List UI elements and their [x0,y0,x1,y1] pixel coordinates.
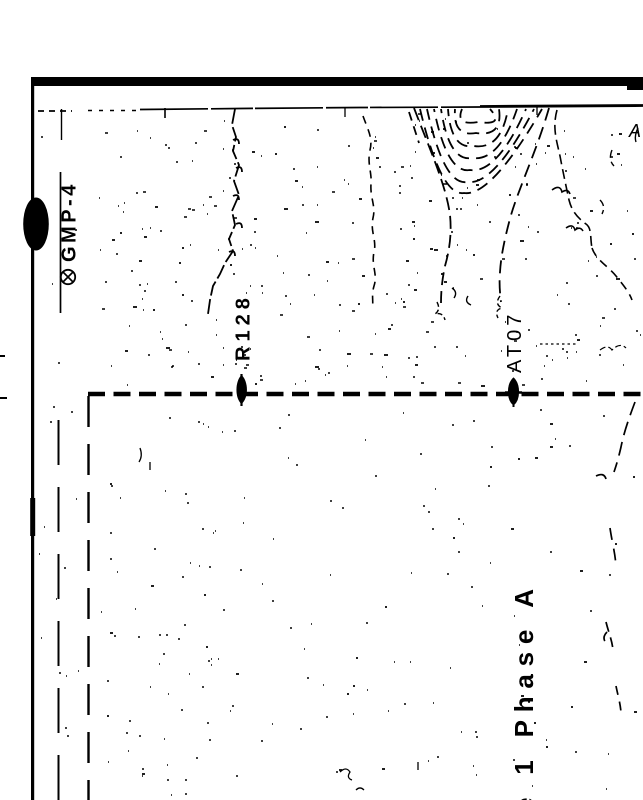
svg-text:GMP-4: GMP-4 [59,181,81,262]
svg-text:A: A [628,121,641,141]
svg-text:R128: R128 [233,293,255,361]
svg-text:e 1 Phase A: e 1 Phase A [509,581,539,800]
svg-text:AT07: AT07 [504,311,526,373]
